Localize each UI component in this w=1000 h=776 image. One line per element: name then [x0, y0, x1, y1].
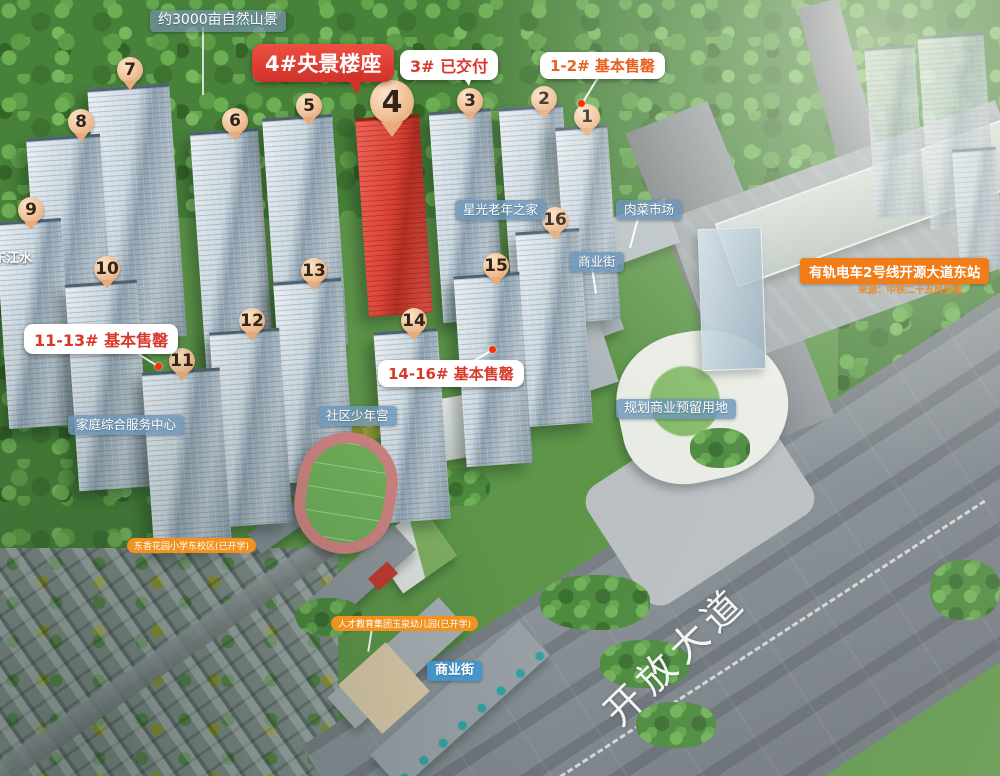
pin-8: 8	[68, 109, 94, 135]
pin-7: 7	[117, 57, 143, 83]
pin-8-number: 8	[75, 112, 87, 132]
pin-9-number: 9	[25, 200, 37, 220]
pin-4: 4	[370, 80, 414, 124]
building3-callout: 3# 已交付	[400, 50, 498, 80]
tower-11	[142, 367, 232, 553]
mountain-label: 约3000亩自然山景	[150, 10, 286, 32]
pin-13: 13	[301, 258, 327, 284]
grove	[930, 560, 1000, 620]
pin-10: 10	[94, 256, 120, 282]
pin-6-number: 6	[229, 111, 241, 131]
mountain-leader-line	[202, 27, 204, 95]
pin-10-number: 10	[95, 259, 119, 279]
pin-3-number: 3	[464, 91, 476, 111]
pin-15: 15	[483, 253, 509, 279]
street-south-label: 商业街	[427, 661, 482, 681]
background-tower	[952, 147, 1000, 271]
kindergarten-label: 人才教育集团玉泉幼儿园(已开学)	[331, 616, 478, 631]
pin-1-number: 1	[581, 107, 593, 127]
water-label: 东江水	[0, 247, 32, 266]
building1-2-target-dot	[578, 100, 585, 107]
tower-10	[65, 280, 151, 492]
masterplan-scene: 东江水 1 2 3 4 5 6 7 8 9 10 11 12 13 14 15 …	[0, 0, 1000, 776]
pin-3: 3	[457, 88, 483, 114]
market-label: 肉菜市场	[616, 200, 682, 220]
pin-12-number: 12	[240, 311, 264, 331]
building14-16-target-dot	[489, 346, 496, 353]
street-north-label: 商业街	[570, 252, 624, 272]
pin-15-number: 15	[484, 256, 508, 276]
pin-14-number: 14	[402, 311, 426, 331]
grove	[690, 428, 750, 468]
elderly-home-label: 星光老年之家	[455, 200, 546, 220]
pin-14: 14	[401, 308, 427, 334]
building3-callout-tail	[460, 71, 476, 87]
pin-2: 2	[531, 86, 557, 112]
building1-2-callout: 1-2# 基本售罄	[540, 52, 665, 79]
grove	[540, 575, 650, 630]
youth-palace-label: 社区少年宫	[318, 406, 397, 426]
pin-2-number: 2	[538, 89, 550, 109]
pin-9: 9	[18, 197, 44, 223]
pin-6: 6	[222, 108, 248, 134]
pin-1: 1	[574, 104, 600, 130]
pin-16-number: 16	[543, 210, 567, 230]
pin-5-number: 5	[303, 96, 315, 116]
building11-13-target-dot	[155, 363, 162, 370]
pin-5: 5	[296, 93, 322, 119]
building14-16-callout: 14-16# 基本售罄	[378, 360, 524, 387]
pin-12: 12	[239, 308, 265, 334]
glass-tower	[698, 227, 767, 371]
pin-13-number: 13	[302, 261, 326, 281]
building4-callout: 4#央景楼座	[252, 44, 394, 82]
building11-13-callout: 11-13# 基本售罄	[24, 324, 178, 354]
family-center-label: 家庭综合服务中心	[68, 415, 184, 435]
kindergarten-leader-line	[367, 628, 373, 652]
tram-source-label: 来源：中铁二十五局官微	[858, 282, 963, 296]
pin-7-number: 7	[124, 60, 136, 80]
reserved-land-label: 规划商业预留用地	[616, 399, 736, 419]
school-label: 东香花园小学东校区(已开学)	[127, 538, 256, 553]
pin-4-number: 4	[382, 85, 403, 120]
tram-station-label: 有轨电车2号线开源大道东站	[800, 258, 989, 284]
pin-11-number: 11	[170, 351, 194, 371]
